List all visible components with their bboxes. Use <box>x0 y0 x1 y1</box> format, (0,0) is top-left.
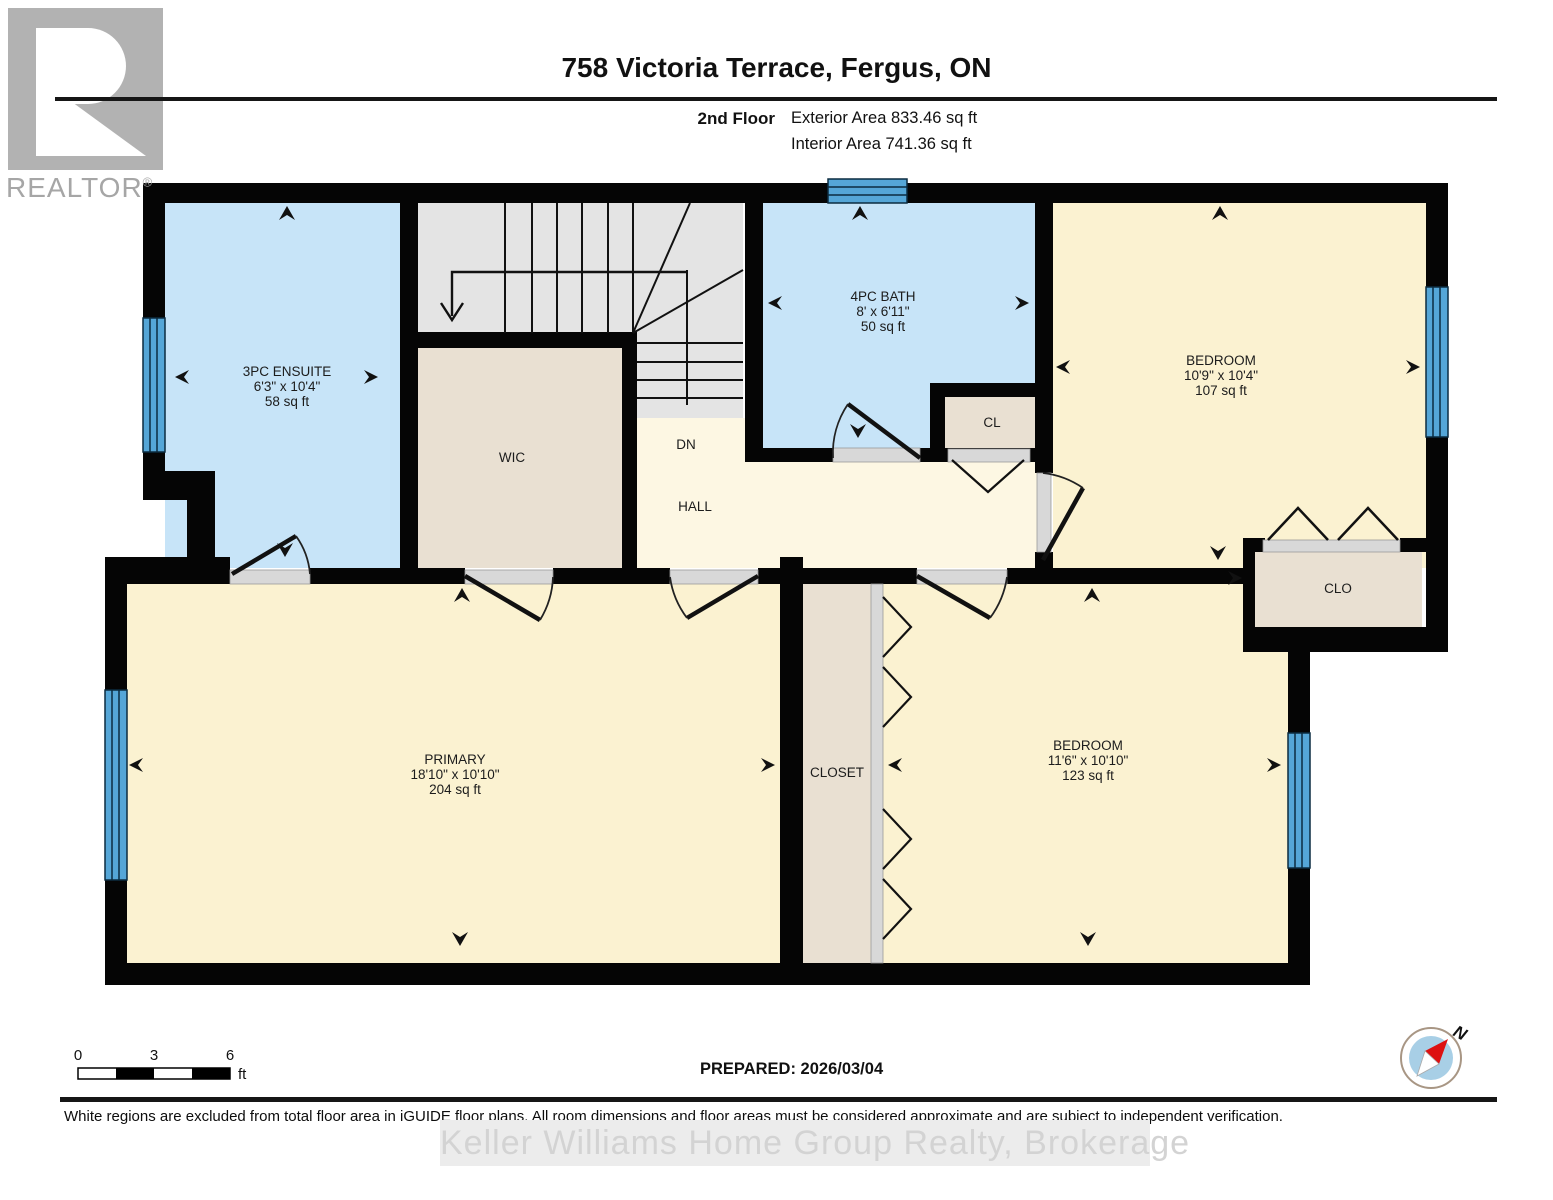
logo-r-stem <box>36 28 72 156</box>
registered-symbol: ® <box>143 175 154 190</box>
header-divider <box>55 97 1497 101</box>
scale-tick-6: 6 <box>226 1047 234 1064</box>
wall <box>1035 183 1053 473</box>
scale-unit: ft <box>238 1066 247 1083</box>
label-bedroom-lower-area: 123 sq ft <box>1062 768 1114 783</box>
page-title: 758 Victoria Terrace, Fergus, ON <box>0 52 1553 84</box>
door-sill <box>1037 473 1051 552</box>
wall <box>930 383 1037 397</box>
wall <box>780 557 803 963</box>
stairs-lower-run <box>637 333 743 418</box>
realtor-wordmark-text: REALTOR <box>6 172 143 203</box>
wall <box>745 183 763 462</box>
window <box>1426 287 1448 437</box>
label-hall: HALL <box>678 499 712 514</box>
scale-bar: 0 3 6 ft <box>74 1047 247 1083</box>
realtor-wordmark: REALTOR® <box>6 172 206 204</box>
label-stairs-dn: DN <box>676 437 696 452</box>
floor-plan-page: REALTOR® 758 Victoria Terrace, Fergus, O… <box>0 0 1553 1200</box>
door-sill <box>948 449 1030 462</box>
door-sill <box>871 584 883 963</box>
label-ensuite-dims: 6'3" x 10'4" <box>254 379 321 394</box>
scale-tick-3: 3 <box>150 1047 158 1064</box>
stairs-upper-run <box>418 203 743 333</box>
label-bedroom-lower-name: BEDROOM <box>1053 738 1123 753</box>
floor-plan-svg: 3PC ENSUITE 6'3" x 10'4" 58 sq ft WIC DN… <box>0 0 1553 1200</box>
label-cl: CL <box>983 415 1001 430</box>
label-bedroom-upper-dims: 10'9" x 10'4" <box>1184 368 1258 383</box>
label-bedroom-upper-name: BEDROOM <box>1186 353 1256 368</box>
compass: N <box>1401 1022 1471 1088</box>
scale-bar-segment <box>192 1068 230 1079</box>
wall <box>400 332 637 348</box>
wall <box>1007 568 1037 584</box>
window <box>143 318 165 452</box>
prepared-date: PREPARED: 2026/03/04 <box>700 1060 883 1079</box>
label-ensuite-area: 58 sq ft <box>265 394 310 409</box>
logo-r-leg <box>72 102 146 156</box>
window <box>1288 733 1310 868</box>
label-bath-name: 4PC BATH <box>850 289 915 304</box>
wall <box>310 568 465 584</box>
wall <box>1243 627 1448 652</box>
realtor-logo <box>8 8 163 170</box>
label-bath-area: 50 sq ft <box>861 319 906 334</box>
door-sill <box>1263 540 1400 552</box>
label-bedroom-lower-dims: 11'6" x 10'10" <box>1048 753 1129 768</box>
wall <box>105 557 230 584</box>
scale-bar-segment <box>116 1068 154 1079</box>
label-primary-dims: 18'10" x 10'10" <box>410 767 499 782</box>
label-wic: WIC <box>499 450 525 465</box>
wall <box>1243 538 1265 552</box>
footer-divider <box>60 1097 1497 1102</box>
wall <box>622 332 637 584</box>
door-sill <box>230 570 310 584</box>
wall <box>400 183 418 584</box>
brokerage-watermark: Keller Williams Home Group Realty, Broke… <box>440 1120 1150 1166</box>
wall <box>763 448 833 462</box>
wall <box>1400 538 1426 552</box>
wall <box>1035 568 1255 584</box>
wall <box>1243 552 1255 629</box>
wall <box>143 183 1448 203</box>
label-clo: CLO <box>1324 581 1352 596</box>
wall <box>930 397 945 448</box>
label-bedroom-upper-area: 107 sq ft <box>1195 383 1247 398</box>
scale-tick-0: 0 <box>74 1047 82 1064</box>
label-bath-dims: 8' x 6'11" <box>856 304 909 319</box>
label-primary-name: PRIMARY <box>424 752 485 767</box>
realtor-logo-icon <box>8 8 163 170</box>
window <box>828 179 907 203</box>
wall <box>105 963 1310 985</box>
window <box>105 690 127 880</box>
label-closet: CLOSET <box>810 765 864 780</box>
wall <box>553 568 670 584</box>
label-primary-area: 204 sq ft <box>429 782 481 797</box>
label-ensuite-name: 3PC ENSUITE <box>243 364 332 379</box>
